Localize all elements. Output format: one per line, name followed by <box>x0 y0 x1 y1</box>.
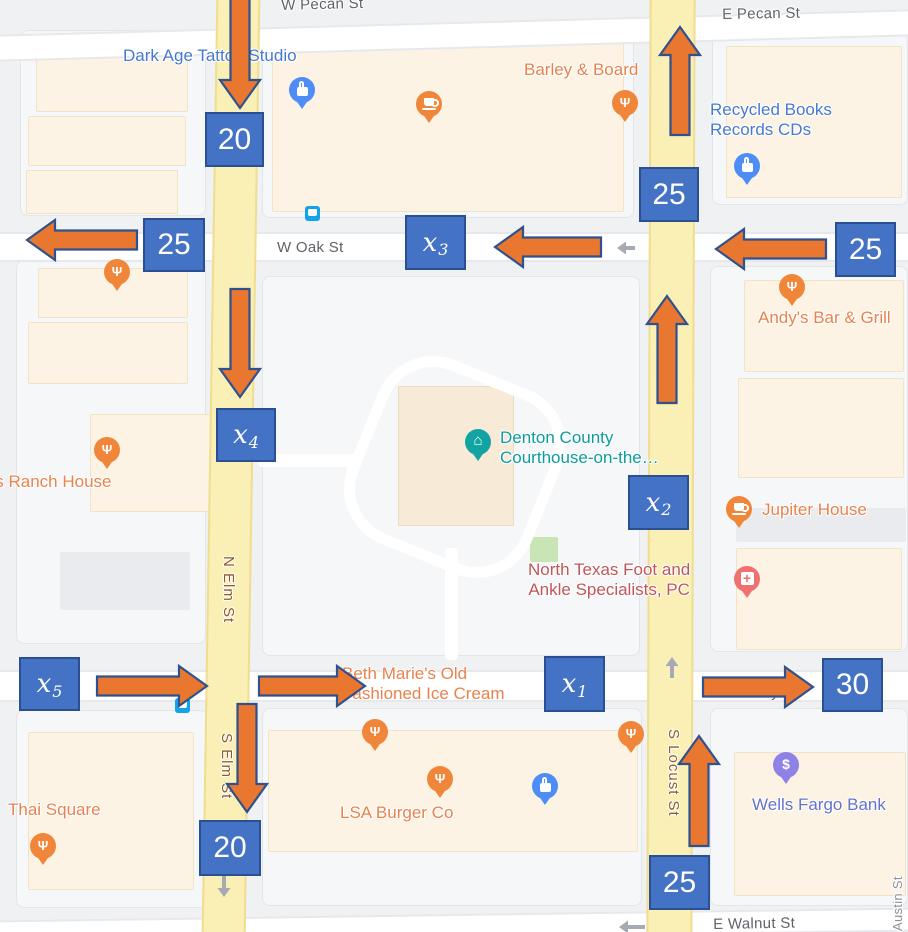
flow-right-arrow <box>259 666 365 706</box>
flow-value-box: 25 <box>639 167 699 222</box>
flow-value: 30 <box>836 668 869 702</box>
flow-variable-subscript: 3 <box>438 240 448 259</box>
oneway-left-arrow-icon <box>617 242 635 255</box>
flow-variable: x <box>233 420 248 450</box>
oneway-left-arrow-icon <box>619 921 645 932</box>
flow-up-arrow <box>647 296 687 403</box>
flow-up-arrow <box>660 27 700 135</box>
flow-right-arrow <box>703 667 813 707</box>
flow-value-box: 30 <box>822 658 883 712</box>
flow-variable-box: x3 <box>405 215 466 270</box>
flow-variable: x <box>423 228 438 258</box>
flow-variable-box: x4 <box>216 408 276 462</box>
oneway-up-arrow-icon <box>666 657 679 678</box>
map-canvas[interactable]: W Pecan StE Pecan StW Oak StE Hickory St… <box>0 0 908 932</box>
flow-variable: x <box>646 488 661 518</box>
flow-variable-subscript: 4 <box>249 433 259 452</box>
flow-variable-box: x1 <box>544 656 605 712</box>
flow-value-box: 20 <box>199 820 261 876</box>
flow-variable: x <box>562 669 577 699</box>
flow-up-arrow <box>679 736 719 846</box>
flow-value: 25 <box>849 233 882 267</box>
flow-left-arrow <box>495 227 601 267</box>
flow-variable: x <box>37 669 52 699</box>
flow-value: 25 <box>157 228 190 262</box>
flow-variable-box: x2 <box>628 475 689 530</box>
flow-value: 20 <box>218 123 251 157</box>
flow-left-arrow <box>27 220 137 260</box>
flow-variable-subscript: 1 <box>577 682 587 701</box>
flow-value-box: 25 <box>835 222 896 277</box>
flow-value-box: 20 <box>205 112 264 167</box>
flow-right-arrow <box>97 666 207 706</box>
flow-variable-subscript: 5 <box>52 682 62 701</box>
flow-down-arrow <box>227 704 267 812</box>
flow-value: 25 <box>663 866 696 900</box>
flow-variable-subscript: 2 <box>661 500 671 519</box>
flow-value-box: 25 <box>649 855 710 910</box>
flow-variable-box: x5 <box>19 657 80 711</box>
flow-down-arrow <box>220 289 260 397</box>
flow-left-arrow <box>716 229 826 269</box>
flow-value-box: 25 <box>143 218 205 272</box>
flow-arrow-layer <box>0 0 908 932</box>
flow-value: 25 <box>652 178 685 212</box>
flow-down-arrow <box>220 0 260 108</box>
oneway-down-arrow-icon <box>218 876 231 897</box>
flow-value: 20 <box>213 831 246 865</box>
